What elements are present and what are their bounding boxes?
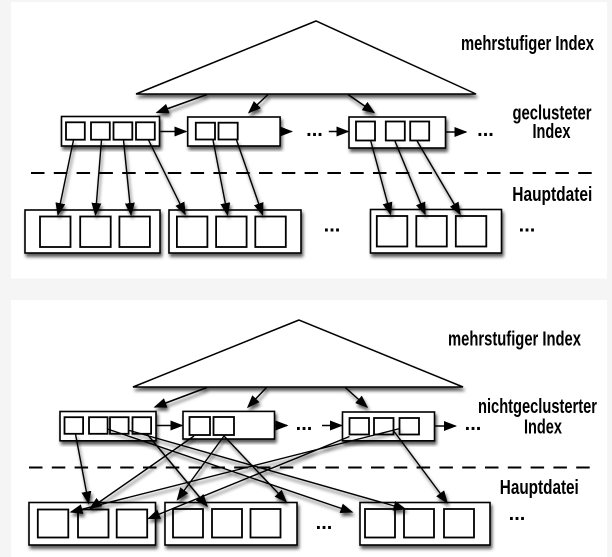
- svg-text:mehrstufiger Index: mehrstufiger Index: [448, 329, 581, 351]
- svg-text:...: ...: [324, 215, 341, 237]
- svg-text:...: ...: [509, 503, 526, 525]
- svg-text:...: ...: [306, 119, 323, 141]
- svg-text:...: ...: [519, 215, 536, 237]
- svg-text:nichtgeclusterter: nichtgeclusterter: [478, 396, 597, 418]
- svg-text:...: ...: [477, 119, 494, 141]
- svg-text:Index: Index: [533, 121, 571, 143]
- svg-text:...: ...: [296, 413, 313, 435]
- svg-text:mehrstufiger Index: mehrstufiger Index: [461, 33, 594, 55]
- svg-text:...: ...: [316, 512, 333, 534]
- svg-text:Index: Index: [524, 417, 562, 439]
- svg-text:Hauptdatei: Hauptdatei: [500, 477, 579, 499]
- svg-text:Hauptdatei: Hauptdatei: [512, 184, 592, 206]
